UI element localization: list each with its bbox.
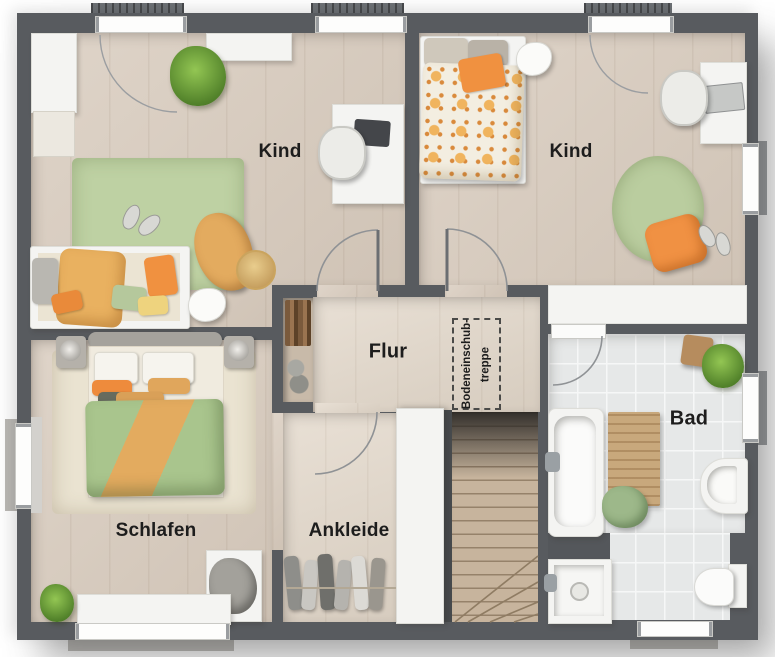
room-label-flur: Flur — [369, 341, 408, 364]
room-floor-flur — [313, 297, 540, 412]
window-sill-right-2 — [758, 371, 767, 445]
laptop-kind-right — [703, 82, 746, 114]
plant-kind-left — [170, 46, 226, 106]
niche-decor — [287, 356, 309, 396]
door-opening-kind-right — [445, 285, 507, 297]
window-right-2 — [742, 373, 759, 443]
room-label-ankleide: Ankleide — [309, 520, 390, 542]
niche-shelf-books — [285, 300, 311, 346]
window-top-3 — [588, 16, 674, 33]
window-top-1 — [95, 16, 187, 33]
stairwell-void — [452, 412, 538, 478]
bad-door-leaf — [551, 324, 606, 339]
floor-plan: Kind Kind Flur Schlafen Ankleide Bad Bod… — [0, 0, 775, 657]
plant-bad — [702, 344, 744, 388]
bathtub-inner — [554, 416, 596, 527]
window-top-2 — [315, 16, 407, 33]
desk-chair-kind-right — [660, 70, 708, 126]
window-left — [15, 423, 32, 509]
pillow-yellow — [137, 295, 168, 316]
window-sill-right-1 — [758, 141, 767, 215]
room-label-kind-left: Kind — [258, 141, 301, 163]
door-opening-kind-left — [317, 285, 378, 297]
open-shelf — [33, 111, 75, 157]
nightstand-right — [224, 336, 254, 368]
room-label-schlafen: Schlafen — [116, 520, 197, 542]
basket — [236, 250, 276, 290]
bathtub-faucet — [545, 452, 560, 472]
pillow-orange — [143, 254, 178, 298]
wardrobe-tall — [31, 33, 77, 113]
nightstand-left — [56, 336, 86, 368]
attic-ladder-label: Bodeneinschub- treppe — [458, 319, 495, 409]
door-opening-ankleide — [315, 403, 380, 413]
dresser — [77, 594, 231, 625]
room-label-bad: Bad — [670, 408, 708, 431]
washbasin-bowl — [707, 466, 737, 504]
wardrobe-band — [548, 285, 747, 324]
attic-ladder-line2: treppe — [477, 319, 495, 409]
toilet-bowl — [694, 568, 734, 606]
shower-faucet — [544, 574, 557, 592]
shower-drain — [570, 582, 589, 601]
towel-green — [602, 486, 648, 528]
duvet-green — [85, 399, 225, 497]
plant-schlafen — [40, 584, 74, 622]
window-bottom-1 — [75, 623, 230, 640]
room-label-kind-right: Kind — [549, 141, 592, 163]
passage-schlafen-ankleide — [272, 413, 283, 550]
attic-ladder-box: Bodeneinschub- treppe — [452, 318, 501, 410]
desk-chair-kind-left — [318, 126, 366, 180]
window-bottom-2 — [637, 621, 713, 637]
radiator-left — [31, 417, 42, 513]
attic-ladder-line1: Bodeneinschub- — [458, 319, 476, 409]
window-right-1 — [742, 143, 759, 215]
wardrobe-column — [396, 408, 444, 624]
